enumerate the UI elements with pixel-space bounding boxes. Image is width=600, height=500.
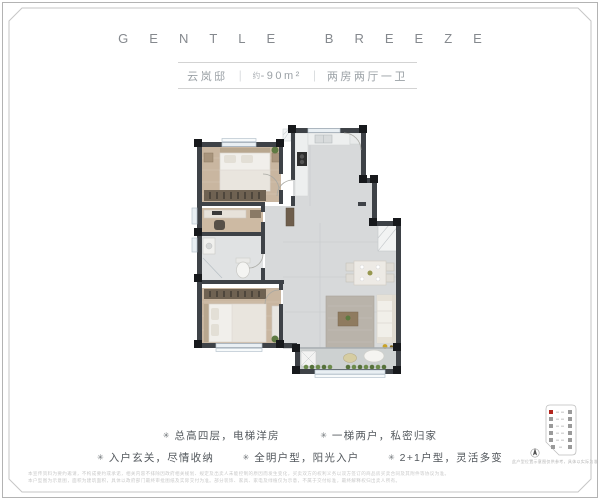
desk xyxy=(204,210,246,218)
page-title: GENTLE BREEZE xyxy=(0,31,600,46)
asterisk-bullet-icon: ✳ xyxy=(320,431,327,440)
separator: ｜ xyxy=(235,68,246,84)
wardrobe-master xyxy=(204,190,266,201)
feature-item: ✳2+1户型，灵活多变 xyxy=(388,451,503,466)
asterisk-bullet-icon: ✳ xyxy=(388,453,395,462)
toilet xyxy=(237,262,250,278)
compass-icon xyxy=(531,448,539,457)
feature-item: ✳总高四层，电梯洋房 xyxy=(163,429,280,444)
floor-plan xyxy=(180,112,430,402)
pouf xyxy=(344,354,357,363)
balcony-table xyxy=(364,350,384,362)
nightstand xyxy=(272,153,280,162)
feature-item: ✳一梯两户，私密归家 xyxy=(320,429,437,444)
dining-chair xyxy=(386,274,394,282)
project-name: 云岚邸 xyxy=(187,68,228,84)
building-location-diagram xyxy=(523,403,585,459)
asterisk-bullet-icon: ✳ xyxy=(97,453,104,462)
dining-chair xyxy=(346,274,354,282)
feature-item: ✳入户玄关，尽情收纳 xyxy=(97,451,214,466)
hallway-console xyxy=(286,208,294,226)
subtitle-bar: 云岚邸 ｜ 约 -90m² ｜ 两房两厅一卫 xyxy=(178,62,417,89)
wardrobe-second xyxy=(204,289,266,299)
nightstand xyxy=(204,153,213,162)
shelf xyxy=(250,210,261,218)
feature-text: 2+1户型，灵活多变 xyxy=(400,452,503,464)
tv-cabinet xyxy=(272,306,280,338)
location-caption: 此户型位置示意图仅供参考，具体以实际为准 xyxy=(505,459,600,465)
headboard xyxy=(220,148,270,153)
feature-text: 全明户型，阳光入户 xyxy=(254,452,359,464)
asterisk-bullet-icon: ✳ xyxy=(242,453,249,462)
asterisk-bullet-icon: ✳ xyxy=(163,431,170,440)
dining-chair xyxy=(386,263,394,271)
layout-type: 两房两厅一卫 xyxy=(327,68,408,84)
feature-text: 总高四层，电梯洋房 xyxy=(174,430,279,442)
dining-chair xyxy=(346,263,354,271)
area-prefix: 约 xyxy=(253,70,261,81)
feature-item: ✳全明户型，阳光入户 xyxy=(242,451,359,466)
poster-canvas: GENTLE BREEZE 云岚邸 ｜ 约 -90m² ｜ 两房两厅一卫 xyxy=(0,0,600,500)
area-value: -90m² xyxy=(261,70,302,82)
feature-row: ✳总高四层，电梯洋房 ✳一梯两户，私密归家 xyxy=(0,427,600,444)
feature-text: 一梯两户，私密归家 xyxy=(332,430,437,442)
highlighted-unit xyxy=(549,410,553,414)
plant xyxy=(272,147,279,154)
disclaimer-line: 本宣传资料为要约邀请，不构成要约或承诺，相关内容不排除因政府相关规划、规定及出卖… xyxy=(28,470,572,477)
disclaimer-line: 本户型图为示意图，面积为建筑面积，具体以政府部门最终审批图纸及实际交付为准。部分… xyxy=(28,477,572,484)
disclaimer: 本宣传资料为要约邀请，不构成要约或承诺，相关内容不排除因政府相关规划、规定及出卖… xyxy=(28,470,572,484)
floor-plan-svg xyxy=(180,112,430,402)
separator: ｜ xyxy=(309,68,320,84)
desk-chair xyxy=(214,220,225,230)
feature-text: 入户玄关，尽情收纳 xyxy=(109,452,214,464)
